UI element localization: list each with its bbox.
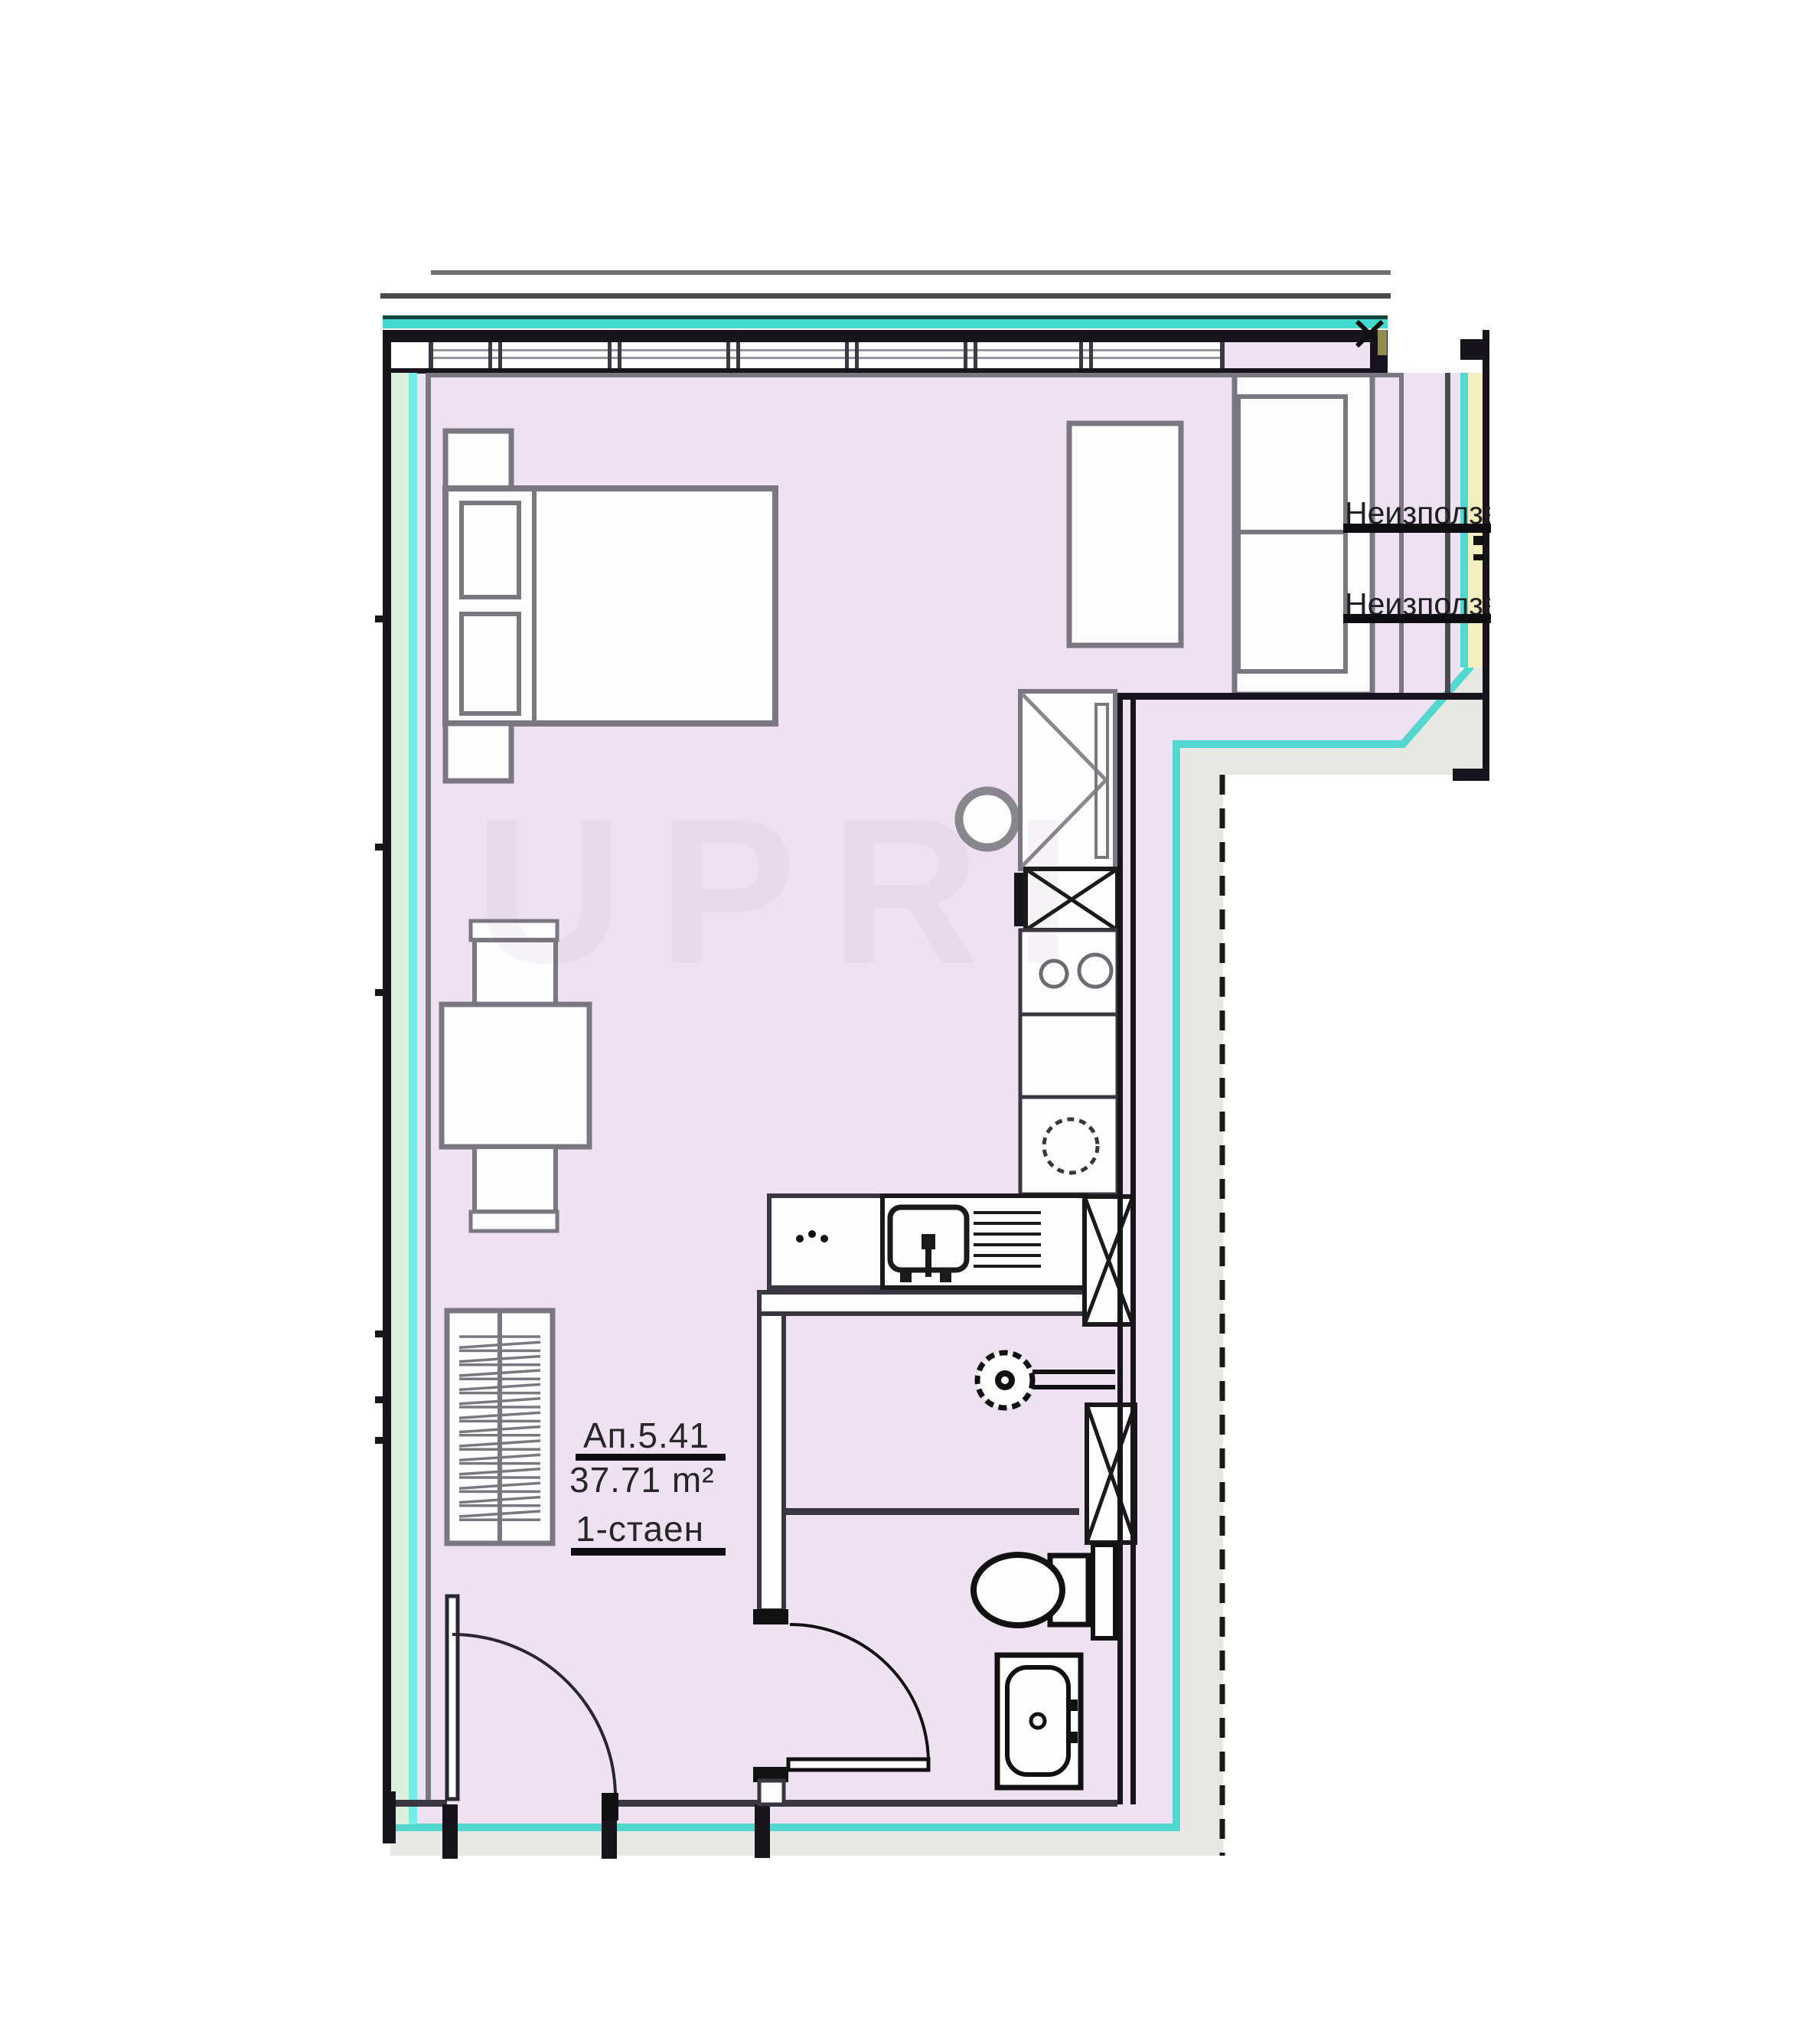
bathroom-top-wall (759, 1292, 1117, 1314)
facade-teal-line (383, 319, 1388, 328)
coffee-table (1069, 423, 1181, 645)
west-wall-outer (383, 330, 391, 1799)
kitchen-wall-outer (1130, 693, 1136, 1804)
apartment-type-underline (571, 1548, 726, 1556)
window-glazing (429, 342, 1225, 368)
facade-teal-edge (383, 315, 1388, 319)
washing-machine (1020, 1097, 1117, 1194)
pillow-2 (462, 614, 519, 713)
unused-area-underline-1 (1343, 524, 1491, 533)
toilet-bowl (974, 1555, 1062, 1625)
unused-area-underline-2 (1343, 614, 1491, 623)
watermark: UPRI (475, 773, 1106, 1011)
apartment-type: 1-стаен (576, 1511, 704, 1546)
olive-marker (1378, 330, 1387, 355)
unused-area-label-1: Неизползваема (1345, 495, 1490, 527)
west-wall-cyan (409, 373, 417, 1824)
dining-table (442, 1004, 589, 1147)
apartment-area: 37.71 m² (569, 1462, 715, 1497)
apartment-number: Ап.5.41 (583, 1418, 710, 1453)
nightstand-top (445, 431, 511, 488)
shower-divider (784, 1508, 1079, 1515)
entrance-door-leaf (447, 1596, 458, 1799)
wardrobe (447, 1311, 553, 1543)
pillow-1 (462, 503, 519, 597)
facade-line-2 (380, 293, 1391, 299)
counter-segment (1020, 1014, 1117, 1097)
bathroom-door-jamb-top (753, 1609, 788, 1624)
kitchen-wall-inner (1117, 693, 1123, 1804)
washbasin (1007, 1667, 1068, 1775)
chair-bottom-back (471, 1212, 557, 1231)
floorplan-page: UPRI Ап.5.41 37.71 m² 1-стаен Неизползва… (0, 0, 1817, 2044)
bathroom-left-wall (759, 1314, 784, 1611)
chair-bottom (475, 1147, 556, 1212)
living-bottom-wall (1117, 693, 1488, 700)
facade-line-1 (431, 270, 1391, 275)
bathroom-door-leaf (788, 1759, 928, 1770)
wall-niche (1093, 1545, 1115, 1638)
west-wall-green (391, 373, 409, 1824)
faucet (922, 1234, 935, 1249)
nightstand-bottom (445, 723, 511, 781)
entrance-door-jamb (602, 1793, 618, 1820)
floorplan-drawing (0, 0, 1817, 2044)
